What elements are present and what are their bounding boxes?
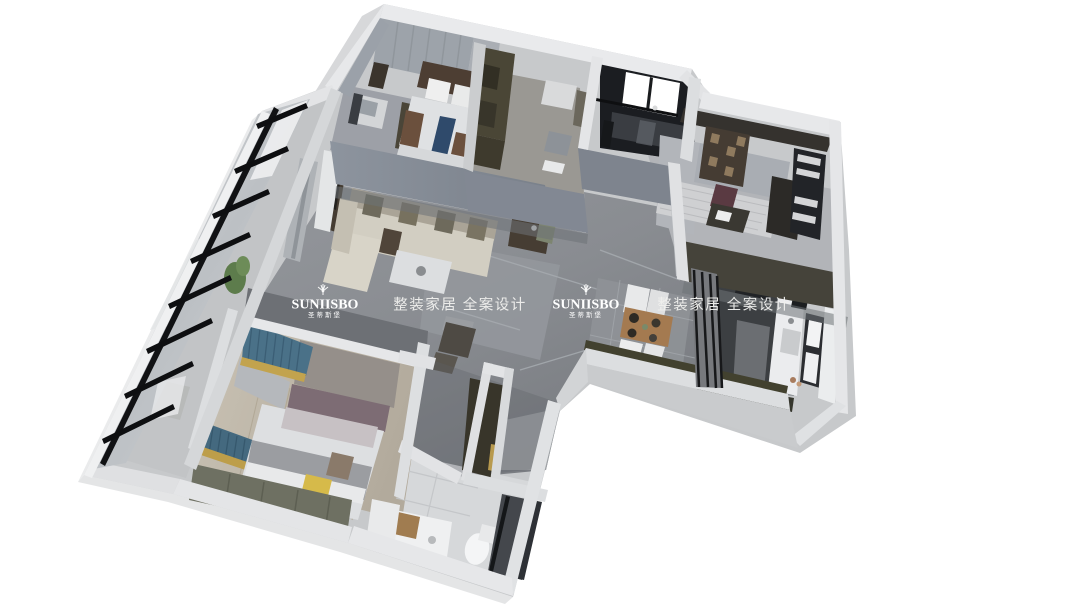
svg-text:圣蒂斯堡: 圣蒂斯堡 — [569, 310, 603, 319]
svg-text:SUNIISBO: SUNIISBO — [292, 298, 359, 313]
svg-text:圣蒂斯堡: 圣蒂斯堡 — [308, 310, 342, 319]
svg-text:整装家居 全案设计: 整装家居 全案设计 — [657, 296, 791, 314]
svg-text:SUNIISBO: SUNIISBO — [553, 298, 620, 313]
svg-text:整装家居 全案设计: 整装家居 全案设计 — [393, 296, 527, 314]
